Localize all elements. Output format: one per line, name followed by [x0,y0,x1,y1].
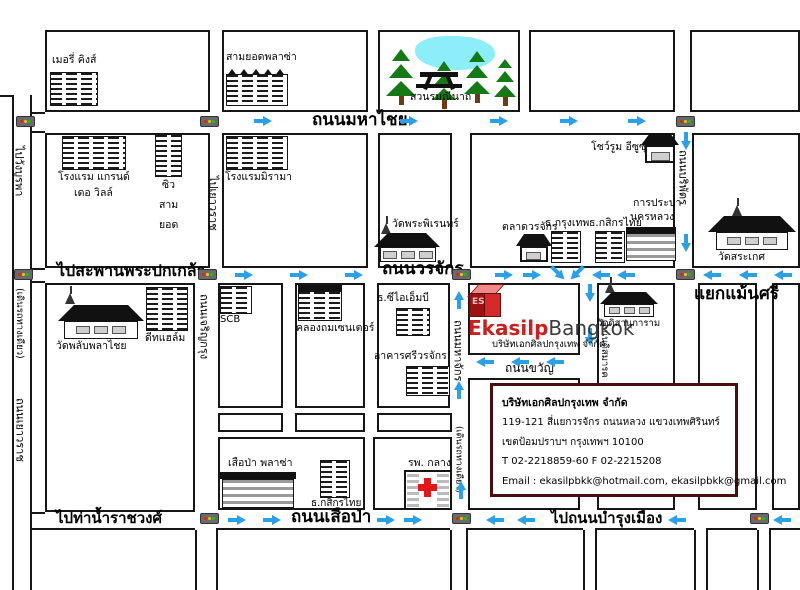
place-label-bangkok-bank: ธ.กรุงเทพ [545,218,589,229]
traffic-light-icon [198,269,217,280]
place-label-waterworks-1: การประปา [633,198,681,209]
road-label-one-way-left: (เดินรถทางเดียว) [14,288,24,359]
company-phone: T 02-2218859-60 F 02-2215208 [502,452,726,472]
road-label-to-bamrung-mueang: ไปถนนบำรุงเมือง [551,511,662,527]
place-label-diethelm: ดีทแฮล์ม [145,333,185,344]
company-name: บริษัทเอกศิลปกรุงเทพ จำกัด [502,393,726,413]
place-label-samyod-plaza: สามยอดพลาซ่า [226,52,297,63]
place-label-siu: ซิว [162,180,175,191]
block-small-2 [295,413,365,432]
road-edge [583,530,585,590]
company-address-box: บริษัทเอกศิลปกรุงเทพ จำกัด 119-121 สี่แย… [490,383,738,497]
building-icon [406,366,450,396]
road-edge [216,528,450,530]
building-icon [220,286,252,314]
place-label-sueapa-plaza: เสือป่า พลาซ่า [228,458,292,469]
road-edge [595,528,694,530]
company-address-line2: เขตป้อมปราบฯ กรุงเทพฯ 10100 [502,433,726,453]
road-edge [216,530,218,590]
arrow-left-icon [511,357,529,367]
road-edge [32,281,45,283]
arrow-right-icon [263,515,281,525]
traffic-light-icon [750,513,769,524]
arrow-right-icon [345,270,363,280]
road-edge [466,530,468,590]
arrow-left-icon [476,357,494,367]
arrow-up-icon [454,291,464,309]
ekasilp-brand-subtitle: บริษัทเอกศิลปกรุงเทพ จำกัด [492,340,605,350]
block-small-3 [377,413,452,432]
building-icon [595,231,625,263]
road-edge [32,268,45,270]
arrow-left-icon [592,270,610,280]
arrow-up-icon [456,481,466,499]
building-icon [62,136,126,170]
traffic-light-icon [200,116,219,127]
place-label-wat-disanukaram: วัดดิสานุการาม [597,319,660,329]
block-top-5 [690,30,800,112]
arrow-down-icon [681,132,691,150]
road-edge [32,112,45,114]
traffic-light-icon [452,269,471,280]
arrow-down-icon [585,284,595,302]
arrow-left-icon [617,270,635,280]
road-edge [769,528,800,530]
place-label-isuzu-showroom: โชว์รูม อีซูซุ [591,142,646,153]
traffic-light-icon [676,269,695,280]
road-label-sueapa: ถนนเสือป่า [291,509,371,527]
place-label-yod: ยอด [159,220,178,231]
ekasilp-cube-logo: ES [469,284,503,320]
road-label-to-wang-burapha: ไปวังบูรพา [13,146,25,196]
place-label-kasikorn-bottom: ธ.กสิกรไทย [311,499,361,510]
arrow-right-icon [235,270,253,280]
arrow-down-icon [681,234,691,252]
arrow-right-icon [290,270,308,280]
road-edge [0,95,12,97]
road-edge [706,528,757,530]
place-label-sri-worachak: อาคารศรีวรจักร [374,351,447,362]
road-label-mahachai: ถนนมหาไชย [312,112,408,130]
traffic-light-icon [676,116,695,127]
road-edge [32,512,45,514]
pine-tree-icon [494,56,516,106]
road-edge [32,131,45,133]
building-icon [146,287,188,331]
place-label-miramar: โรงแรมมิรามา [225,172,292,183]
road-edge [694,530,696,590]
arrow-left-icon [774,270,792,280]
arrow-right-icon [490,116,508,126]
arrow-right-icon [400,116,418,126]
block-small-1 [218,413,283,432]
arrow-left-icon [486,515,504,525]
arrow-right-icon [404,515,422,525]
road-label-yaowarat: ถนนเยาวราช [14,398,26,462]
place-label-klang-hospital: รพ. กลาง [408,458,451,469]
arrow-right-icon [377,515,395,525]
place-label-scb: SCB [220,315,240,326]
building-icon [155,134,182,177]
arrow-left-icon [668,515,686,525]
place-label-khlongthom-center: คลองถมเซนเตอร์ [296,323,374,334]
place-label-romaneenart-park: สวนรมณีนาถ [410,92,471,103]
road-label-to-ratchawong: ไปท่าน้ำราชวงศ์ [56,511,162,527]
arrow-left-icon [739,270,757,280]
place-label-wat-saket: วัดสระเกศ [718,252,765,263]
place-label-waterworks-2: นครหลวง [630,212,674,223]
building-icon [226,74,288,106]
company-email: Email : ekasilpbkk@hotmail.com, ekasilpb… [502,472,726,492]
arrow-right-icon [560,116,578,126]
arrow-right-icon [495,270,513,280]
building-icon [50,72,98,106]
building-icon [551,231,581,263]
road-edge [769,530,771,590]
place-label-wat-phlapphlachai: วัดพลับพลาไชย [56,341,127,352]
junction-label-maensi: แยกแม้นศรี [694,286,779,304]
building-icon [226,136,288,170]
road-edge [32,528,195,530]
building-icon [396,308,430,336]
arrow-left-icon [773,515,791,525]
road-label-to-yaowarat: ไปเยาวราช [207,176,219,231]
place-label-grand-de-ville-2: เดอ วิลล์ [74,188,113,199]
arrow-up-icon [454,381,464,399]
arrow-left-icon [703,270,721,280]
ekasilp-bangkok-location-map: ถนนมหาไชย ถนนวรจักร ไปสะพานพระปกเกล้า ถน… [0,0,800,590]
arrow-right-icon [628,116,646,126]
traffic-light-icon [14,269,33,280]
road-edge [466,528,583,530]
road-edge [195,530,197,590]
arrow-right-icon [228,515,246,525]
road-label-charoen-krung: ถนนเจริญกรุง [198,294,210,359]
arrow-left-icon [546,357,564,367]
place-label-merry-kings: เมอรี่ คิงส์ [52,55,96,66]
arrow-right-icon [523,270,541,280]
building-icon [320,460,350,498]
place-label-cimb: ธ.ซีไอเอ็มบี [377,293,429,304]
road-label-to-phra-pokklao: ไปสะพานพระปกเกล้า [57,263,206,280]
road-edge [30,95,32,590]
company-address-line1: 119-121 สี่แยกวรจักร ถนนหลวง แขวงเทพศิริ… [502,413,726,433]
traffic-light-icon [200,513,219,524]
road-edge [757,530,759,590]
road-edge [706,530,708,590]
arrow-right-icon [254,116,272,126]
traffic-light-icon [452,513,471,524]
traffic-light-icon [16,116,35,127]
road-edge [450,530,452,590]
road-label-mahachak: ถนนมหาจักร [452,320,464,381]
place-label-grand-de-ville-1: โรงแรม แกรนด์ [58,172,130,183]
arrow-left-icon [517,515,535,525]
place-label-wat-phra-phiren: วัดพระพิเรนทร์ [392,219,459,230]
place-label-sam: สาม [159,200,178,211]
block-top-4 [529,30,675,112]
road-edge [595,530,597,590]
